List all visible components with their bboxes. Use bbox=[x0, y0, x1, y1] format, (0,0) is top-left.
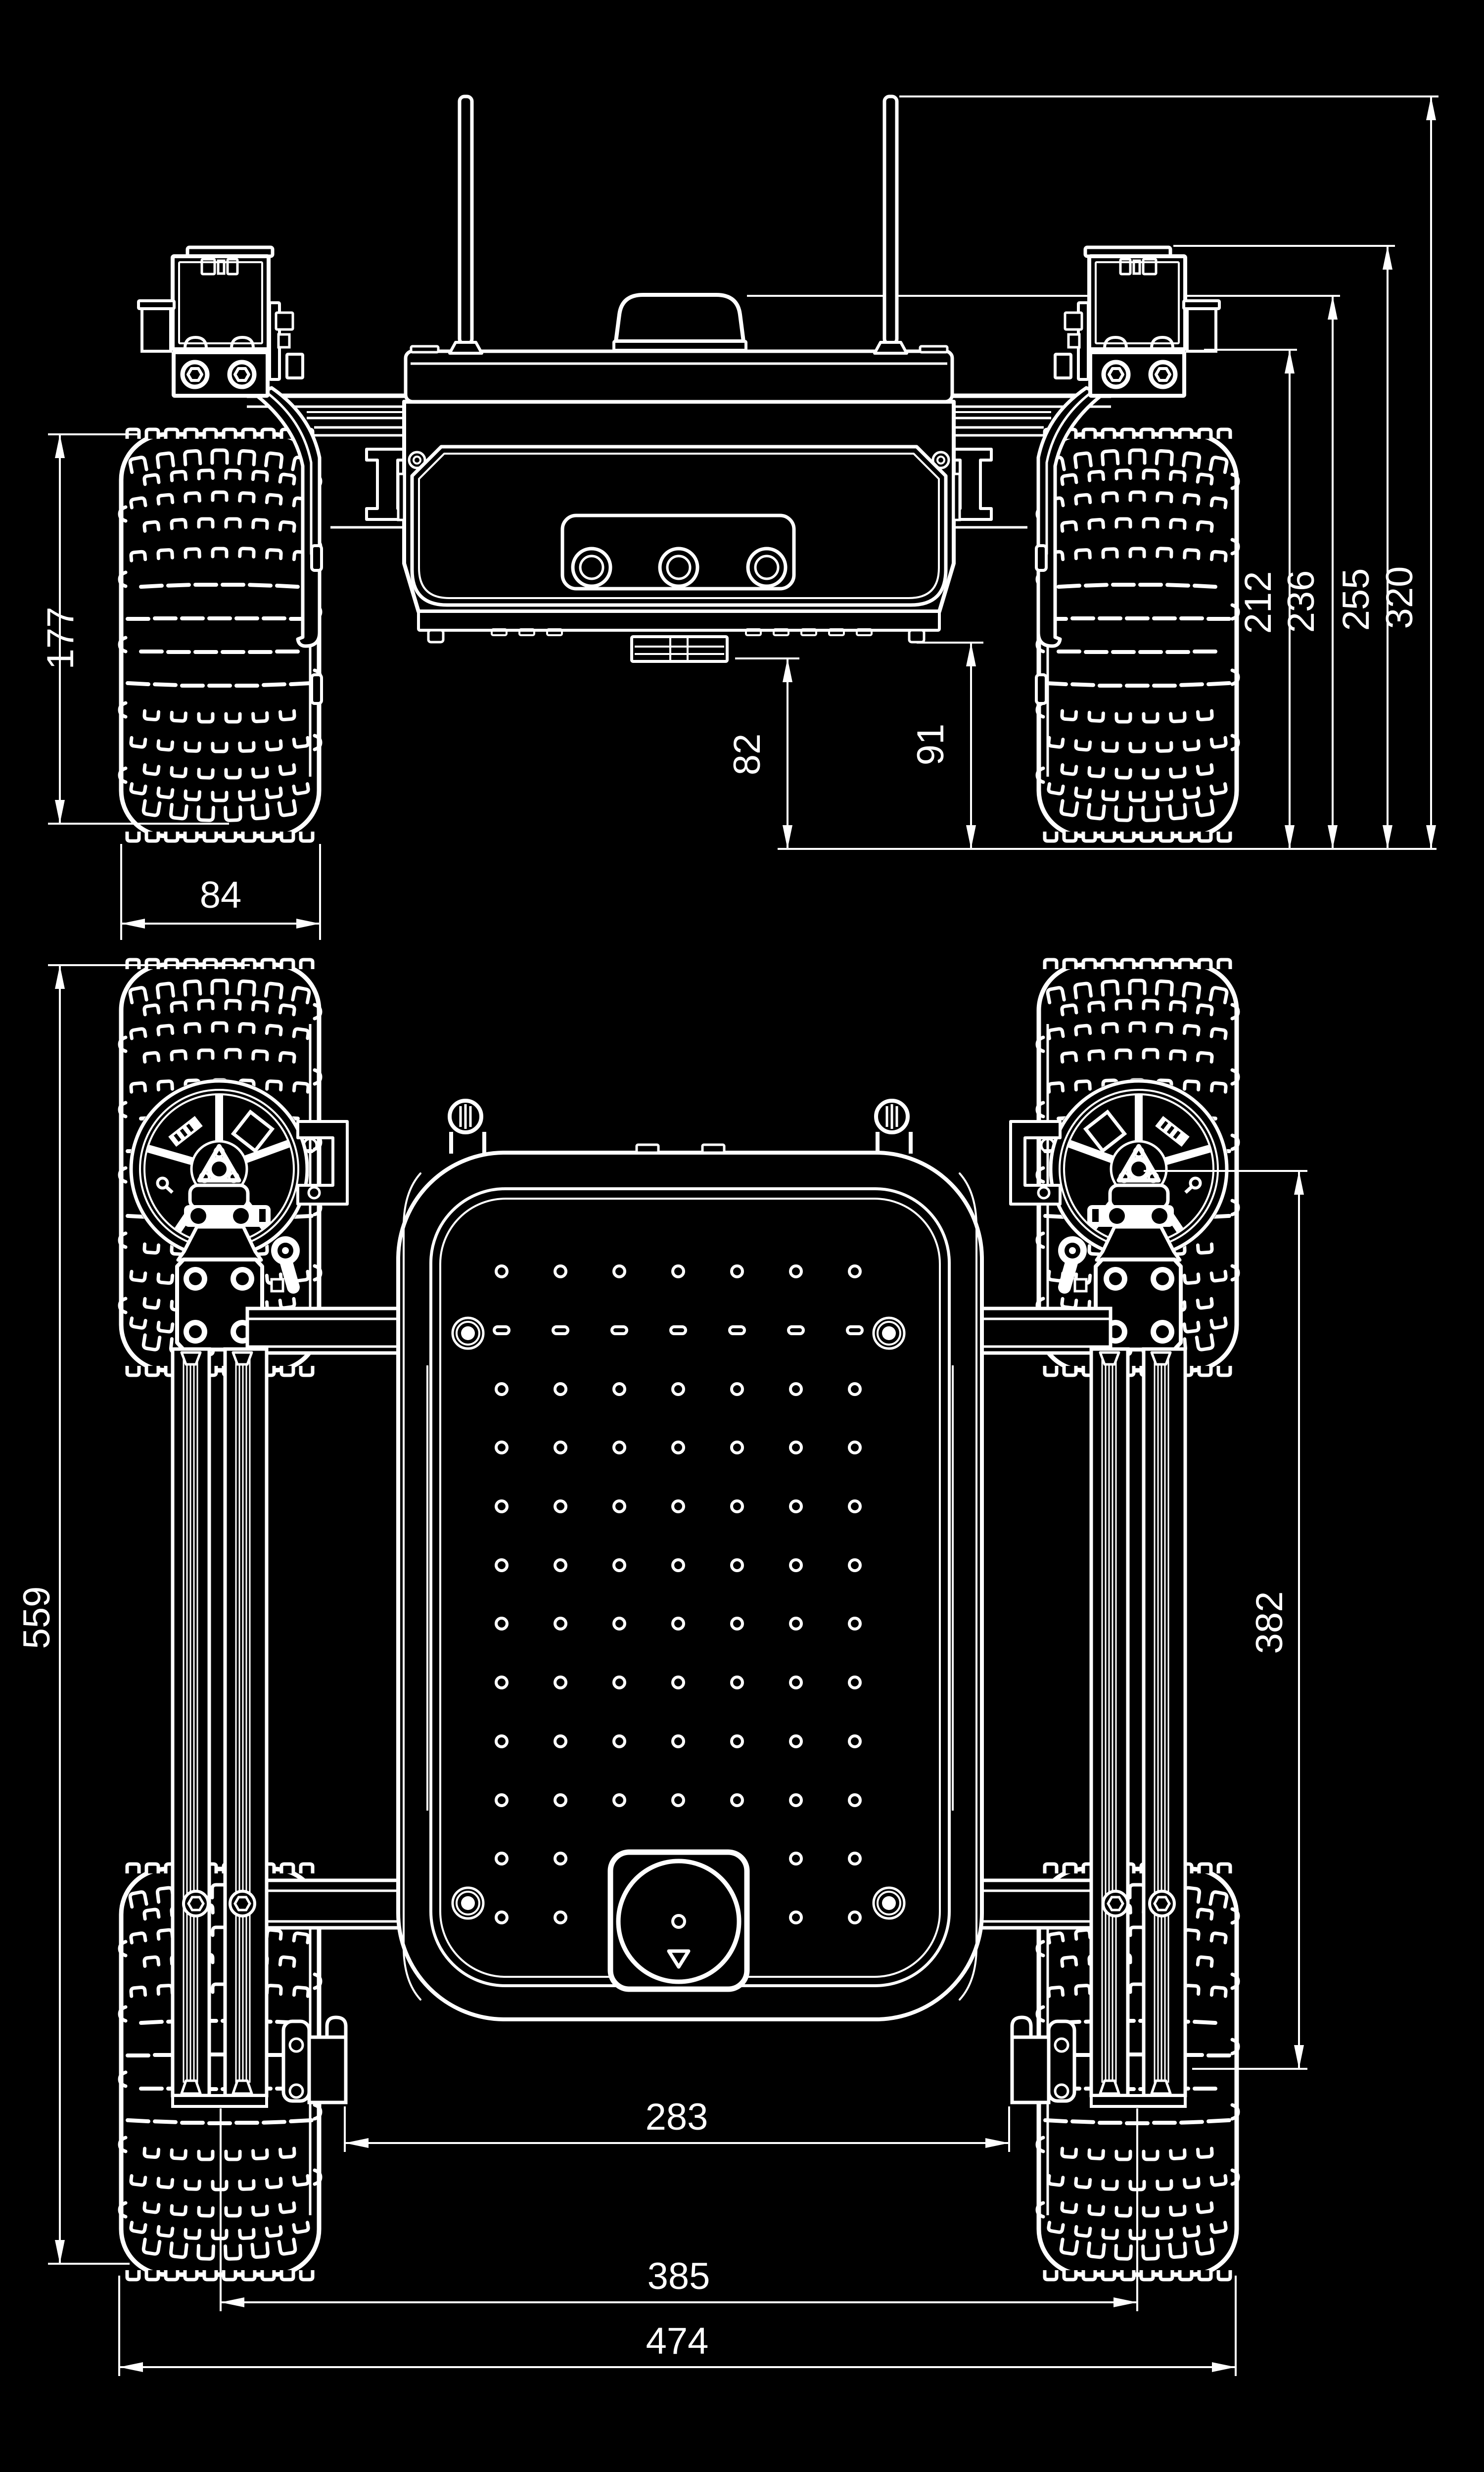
svg-text:84: 84 bbox=[200, 874, 242, 916]
svg-text:82: 82 bbox=[726, 734, 768, 776]
svg-text:382: 382 bbox=[1249, 1591, 1291, 1654]
svg-text:91: 91 bbox=[910, 724, 952, 766]
svg-text:320: 320 bbox=[1379, 566, 1421, 629]
svg-text:559: 559 bbox=[16, 1586, 58, 1649]
svg-text:283: 283 bbox=[646, 2096, 708, 2138]
svg-text:212: 212 bbox=[1237, 571, 1279, 634]
svg-text:236: 236 bbox=[1280, 570, 1322, 633]
svg-text:474: 474 bbox=[646, 2320, 709, 2362]
svg-text:255: 255 bbox=[1335, 568, 1377, 631]
svg-text:385: 385 bbox=[648, 2255, 710, 2297]
svg-text:177: 177 bbox=[40, 607, 82, 670]
